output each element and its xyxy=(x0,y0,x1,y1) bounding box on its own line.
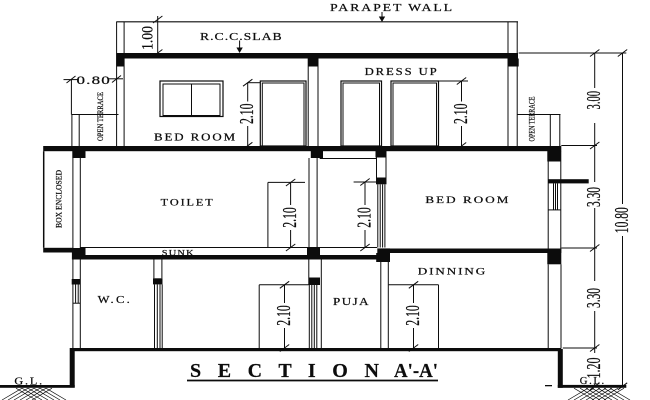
svg-text:OPEN TERRACE: OPEN TERRACE xyxy=(96,92,105,141)
svg-text:2.10: 2.10 xyxy=(236,104,258,125)
svg-text:SUNK: SUNK xyxy=(162,247,195,257)
svg-text:3.30: 3.30 xyxy=(583,187,605,207)
svg-text:OPEN TERRACE: OPEN TERRACE xyxy=(527,96,536,141)
svg-text:3.00: 3.00 xyxy=(583,91,605,110)
svg-text:S E C T I O N: S E C T I O N xyxy=(190,360,385,382)
svg-text:0.80: 0.80 xyxy=(77,75,112,87)
svg-text:2.10: 2.10 xyxy=(354,207,376,228)
svg-text:2.10: 2.10 xyxy=(450,104,472,125)
svg-text:BOX ENCLOSED: BOX ENCLOSED xyxy=(54,170,63,228)
svg-text:BED ROOM: BED ROOM xyxy=(154,133,237,144)
svg-text:A'-A': A'-A' xyxy=(394,360,438,382)
svg-text:TOILET: TOILET xyxy=(161,198,215,208)
svg-text:PUJA: PUJA xyxy=(333,297,370,308)
svg-text:DINNING: DINNING xyxy=(418,267,487,278)
svg-text:2.10: 2.10 xyxy=(402,305,424,326)
svg-text:DRESS UP: DRESS UP xyxy=(365,67,439,78)
svg-text:2.10: 2.10 xyxy=(279,207,301,228)
svg-text:2.10: 2.10 xyxy=(273,305,295,326)
svg-text:10.80: 10.80 xyxy=(611,207,633,233)
svg-text:1.00: 1.00 xyxy=(140,26,157,50)
svg-text:G.L.: G.L. xyxy=(14,377,44,388)
svg-text:3.30: 3.30 xyxy=(583,288,605,308)
svg-text:G.L.: G.L. xyxy=(580,376,606,387)
svg-text:R.C.C.SLAB: R.C.C.SLAB xyxy=(200,31,283,43)
svg-text:BED ROOM: BED ROOM xyxy=(425,195,510,206)
svg-text:PARAPET WALL: PARAPET WALL xyxy=(330,2,454,14)
svg-text:W.C.: W.C. xyxy=(98,295,132,306)
